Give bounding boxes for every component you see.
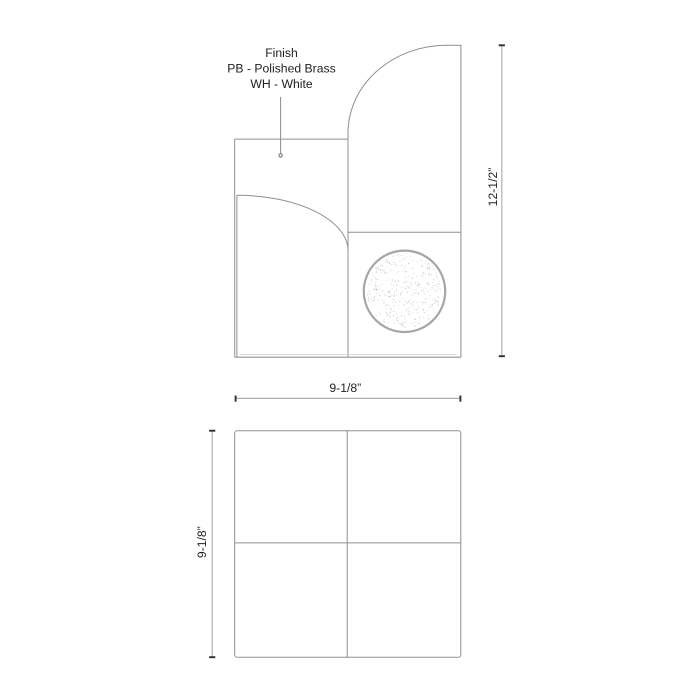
svg-text:PB - Polished Brass: PB - Polished Brass (227, 62, 335, 76)
svg-text:WH - White: WH - White (250, 77, 313, 91)
svg-text:12-1/2”: 12-1/2” (486, 168, 500, 207)
svg-text:9-1/8”: 9-1/8” (329, 381, 361, 395)
svg-text:9-1/8”: 9-1/8” (195, 526, 209, 558)
svg-text:Finish: Finish (265, 46, 298, 60)
